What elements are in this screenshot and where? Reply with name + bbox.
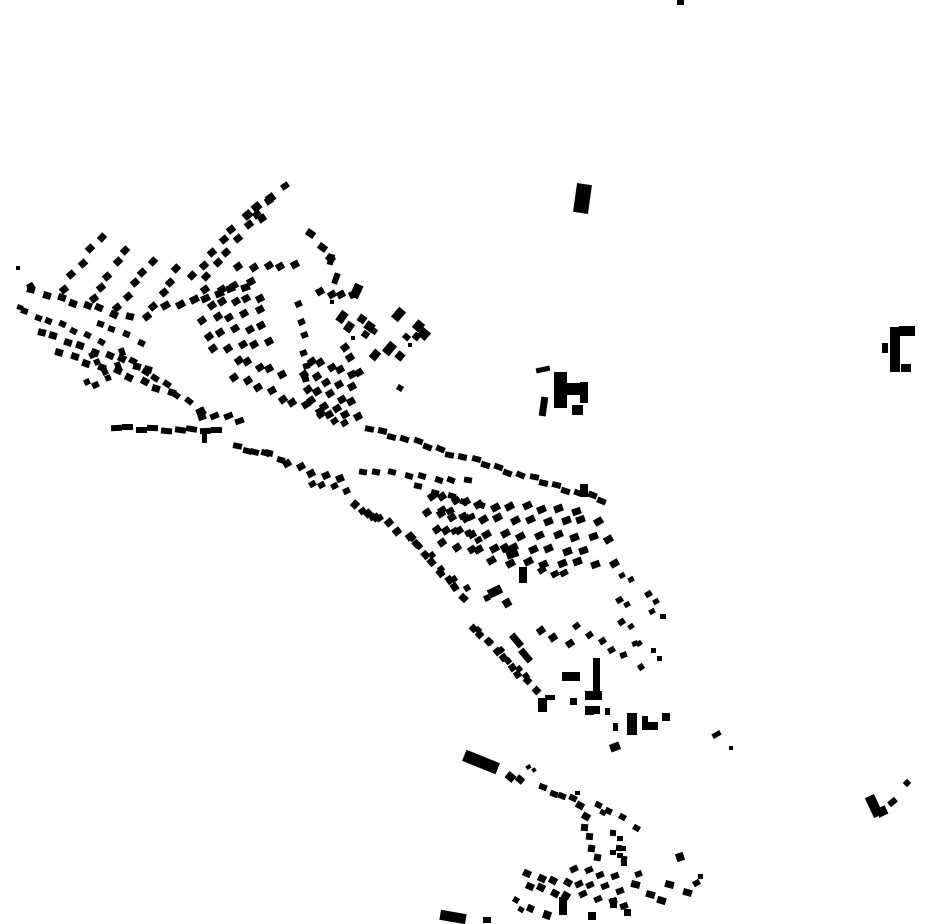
- building: [588, 532, 599, 542]
- building: [615, 845, 622, 852]
- building: [483, 917, 491, 923]
- building: [698, 874, 703, 879]
- building: [331, 272, 340, 284]
- building: [414, 483, 423, 491]
- building: [392, 526, 403, 536]
- building: [522, 501, 533, 511]
- building: [532, 686, 542, 696]
- building: [282, 459, 292, 469]
- building: [241, 293, 251, 303]
- building: [618, 813, 627, 822]
- building: [321, 378, 331, 388]
- building: [512, 896, 520, 904]
- building: [404, 472, 413, 480]
- building: [122, 330, 131, 338]
- building: [610, 830, 616, 836]
- building: [343, 321, 355, 334]
- building: [572, 405, 583, 415]
- building: [130, 277, 141, 288]
- building: [229, 373, 240, 383]
- building: [232, 442, 242, 450]
- building: [215, 328, 226, 338]
- building: [627, 575, 635, 582]
- building: [95, 282, 106, 293]
- building: [660, 614, 666, 619]
- building: [500, 529, 511, 539]
- building: [623, 600, 631, 607]
- building: [68, 299, 78, 308]
- building: [390, 306, 405, 322]
- building: [137, 267, 148, 278]
- building: [548, 876, 558, 886]
- building: [480, 461, 490, 469]
- building: [250, 448, 260, 456]
- building: [682, 888, 693, 897]
- building: [311, 386, 322, 396]
- building: [264, 364, 274, 374]
- building: [91, 381, 100, 389]
- building: [186, 425, 198, 433]
- building: [334, 379, 344, 389]
- building: [657, 656, 662, 661]
- building: [408, 343, 412, 347]
- building: [573, 183, 592, 214]
- building: [171, 263, 182, 274]
- building: [534, 531, 545, 541]
- building: [267, 385, 277, 395]
- building: [609, 558, 620, 569]
- building: [656, 895, 667, 904]
- building: [630, 880, 640, 889]
- building: [542, 910, 552, 920]
- building: [557, 792, 567, 801]
- building: [107, 325, 116, 333]
- building: [596, 496, 607, 505]
- building: [218, 234, 229, 245]
- building: [627, 622, 635, 630]
- building: [575, 791, 580, 795]
- building: [523, 557, 534, 567]
- building: [124, 373, 134, 383]
- building: [901, 364, 911, 372]
- building: [594, 706, 600, 714]
- building: [224, 412, 235, 421]
- building: [137, 339, 146, 347]
- building: [471, 455, 481, 463]
- building: [344, 353, 355, 363]
- building: [594, 800, 603, 808]
- building: [627, 713, 637, 735]
- building: [452, 543, 463, 553]
- building: [350, 499, 361, 510]
- building: [490, 502, 501, 512]
- building: [158, 287, 169, 298]
- building: [358, 468, 367, 475]
- building: [171, 390, 181, 400]
- building: [287, 397, 298, 407]
- building: [187, 270, 198, 281]
- building: [274, 262, 284, 272]
- building: [54, 348, 64, 357]
- building: [388, 468, 397, 476]
- building: [152, 384, 162, 393]
- building: [652, 597, 660, 604]
- building: [249, 340, 259, 350]
- building: [648, 722, 658, 730]
- building: [529, 473, 539, 481]
- building: [617, 836, 623, 841]
- building: [96, 232, 107, 243]
- building: [587, 490, 598, 499]
- building: [550, 569, 560, 578]
- building: [206, 300, 217, 310]
- building: [206, 247, 217, 258]
- building: [572, 622, 581, 631]
- building: [632, 823, 641, 832]
- building: [256, 320, 266, 330]
- building: [489, 543, 500, 553]
- building: [593, 853, 601, 861]
- building: [200, 284, 211, 294]
- building: [184, 396, 194, 406]
- building: [458, 453, 468, 461]
- building: [16, 266, 20, 270]
- building: [248, 263, 259, 273]
- building: [317, 480, 326, 489]
- building: [304, 228, 315, 239]
- building: [574, 800, 584, 810]
- building: [233, 261, 244, 271]
- building: [551, 481, 561, 489]
- building: [711, 730, 721, 739]
- building: [492, 512, 503, 522]
- building: [148, 256, 159, 267]
- building: [618, 571, 626, 578]
- building: [264, 336, 274, 346]
- building: [543, 544, 554, 554]
- building: [242, 357, 253, 367]
- building: [478, 514, 489, 525]
- building: [85, 243, 96, 254]
- building: [607, 645, 616, 654]
- building: [231, 297, 241, 307]
- building: [598, 636, 607, 645]
- building: [600, 881, 610, 890]
- building: [449, 582, 459, 593]
- building: [111, 425, 122, 432]
- building: [339, 342, 350, 352]
- building: [445, 451, 455, 459]
- building: [464, 477, 473, 484]
- building: [83, 378, 91, 386]
- building: [136, 426, 147, 432]
- building: [37, 328, 46, 337]
- building: [400, 435, 410, 443]
- building: [536, 365, 551, 373]
- building: [44, 317, 53, 325]
- building: [559, 569, 569, 578]
- building: [422, 508, 433, 518]
- building: [691, 879, 700, 888]
- building: [254, 304, 264, 314]
- building: [42, 291, 52, 300]
- building: [651, 648, 656, 653]
- building: [324, 388, 334, 398]
- building: [381, 340, 396, 356]
- building: [562, 672, 580, 681]
- building: [538, 698, 547, 712]
- building: [48, 331, 58, 340]
- building: [245, 324, 255, 334]
- building: [882, 343, 888, 353]
- building: [104, 374, 112, 382]
- building: [662, 713, 670, 721]
- building: [238, 340, 248, 350]
- building: [34, 314, 43, 322]
- building: [643, 590, 652, 599]
- building: [535, 883, 545, 893]
- building: [290, 259, 300, 269]
- building: [320, 471, 330, 481]
- building: [439, 910, 466, 924]
- building: [255, 294, 265, 304]
- building: [189, 294, 200, 304]
- building: [335, 290, 345, 300]
- building: [538, 479, 548, 487]
- building: [102, 271, 113, 282]
- building: [588, 912, 596, 920]
- building: [536, 504, 547, 514]
- building: [580, 382, 588, 403]
- building: [70, 352, 80, 361]
- building: [422, 442, 433, 451]
- building: [578, 890, 588, 899]
- building: [610, 872, 620, 880]
- building: [346, 381, 356, 391]
- building: [545, 695, 555, 700]
- building: [563, 877, 573, 887]
- building: [280, 181, 290, 191]
- building: [637, 663, 645, 671]
- building: [97, 337, 106, 346]
- building: [616, 618, 625, 627]
- building: [525, 881, 535, 891]
- building: [346, 396, 356, 406]
- building: [585, 706, 594, 715]
- building: [505, 558, 516, 568]
- building: [113, 256, 124, 267]
- building: [605, 708, 610, 715]
- building: [229, 280, 239, 290]
- building: [565, 638, 575, 648]
- building: [538, 396, 548, 416]
- building: [437, 537, 448, 547]
- building: [522, 868, 532, 878]
- building: [510, 515, 521, 525]
- building: [146, 425, 157, 432]
- building: [204, 331, 215, 341]
- building: [504, 501, 515, 511]
- building-footprint-map: [0, 0, 930, 924]
- building: [609, 742, 621, 753]
- building: [226, 225, 237, 235]
- building: [525, 514, 536, 524]
- building: [160, 300, 171, 311]
- building: [314, 357, 325, 367]
- building: [515, 532, 526, 542]
- building: [315, 286, 325, 296]
- building: [174, 299, 185, 309]
- building: [619, 651, 628, 659]
- building: [595, 871, 605, 880]
- building: [528, 545, 539, 555]
- building: [148, 301, 159, 312]
- building: [330, 300, 334, 304]
- building: [75, 341, 85, 350]
- building: [504, 771, 516, 783]
- building: [584, 865, 594, 874]
- building: [561, 516, 572, 526]
- building: [150, 373, 160, 382]
- building: [502, 598, 513, 609]
- building: [243, 375, 254, 385]
- building: [296, 461, 306, 471]
- building: [548, 632, 559, 642]
- building: [340, 419, 349, 428]
- building: [517, 647, 532, 663]
- building: [224, 312, 234, 322]
- building: [574, 879, 584, 888]
- building: [572, 557, 583, 567]
- building: [446, 476, 456, 484]
- building: [342, 487, 351, 495]
- building: [580, 824, 587, 831]
- building: [165, 277, 176, 288]
- building: [369, 349, 382, 362]
- building: [486, 555, 497, 566]
- building: [569, 864, 579, 873]
- building: [557, 558, 568, 568]
- building: [223, 343, 234, 353]
- building: [466, 513, 476, 522]
- building: [209, 411, 220, 420]
- building: [294, 300, 303, 308]
- building: [220, 247, 231, 258]
- building: [417, 472, 426, 480]
- building: [364, 425, 374, 433]
- building: [122, 424, 133, 430]
- building: [525, 903, 534, 912]
- building: [401, 332, 410, 341]
- building: [553, 503, 564, 513]
- building: [211, 427, 222, 433]
- building: [251, 201, 263, 213]
- building: [242, 209, 254, 221]
- building: [435, 444, 446, 453]
- building: [578, 545, 589, 555]
- building: [620, 856, 627, 863]
- building: [386, 433, 396, 441]
- building: [434, 476, 444, 484]
- building: [515, 774, 526, 785]
- building: [81, 359, 91, 368]
- building: [58, 320, 67, 328]
- building: [105, 351, 115, 361]
- building: [451, 496, 461, 506]
- building: [306, 468, 316, 478]
- building: [253, 382, 263, 392]
- building: [554, 372, 567, 408]
- building: [624, 909, 631, 916]
- building: [569, 533, 580, 543]
- building: [585, 691, 602, 700]
- building: [675, 852, 685, 862]
- building: [903, 779, 911, 787]
- building: [232, 233, 243, 244]
- building: [515, 470, 526, 479]
- building: [94, 303, 104, 313]
- building: [69, 327, 78, 336]
- building: [20, 307, 29, 315]
- building: [234, 416, 245, 425]
- building: [297, 318, 306, 326]
- building: [351, 336, 355, 340]
- building: [83, 330, 92, 339]
- building: [677, 0, 684, 5]
- building: [353, 411, 363, 421]
- building: [213, 257, 224, 268]
- building: [239, 308, 249, 318]
- building: [277, 370, 287, 380]
- building: [212, 312, 223, 322]
- building: [585, 631, 594, 640]
- building: [664, 880, 674, 889]
- building: [330, 417, 339, 426]
- building: [538, 783, 548, 791]
- building: [729, 746, 733, 750]
- building: [603, 534, 614, 545]
- building: [396, 384, 404, 392]
- building: [413, 436, 423, 445]
- building: [77, 258, 88, 269]
- building: [201, 271, 212, 282]
- building: [63, 338, 73, 347]
- building: [519, 567, 527, 583]
- building: [581, 811, 591, 821]
- building: [66, 269, 77, 280]
- building: [536, 625, 547, 635]
- building: [481, 529, 492, 540]
- building: [370, 327, 378, 335]
- building: [141, 311, 152, 321]
- building: [263, 260, 273, 270]
- building: [575, 514, 586, 524]
- building: [586, 832, 594, 840]
- building: [199, 261, 210, 272]
- building: [200, 428, 211, 435]
- building: [585, 880, 595, 889]
- building: [462, 750, 500, 775]
- building: [197, 316, 208, 326]
- building: [615, 887, 625, 895]
- building: [508, 632, 523, 648]
- building: [887, 797, 898, 807]
- building: [570, 698, 577, 705]
- building: [316, 242, 327, 253]
- building: [587, 845, 595, 853]
- building: [299, 349, 308, 357]
- building: [27, 285, 36, 294]
